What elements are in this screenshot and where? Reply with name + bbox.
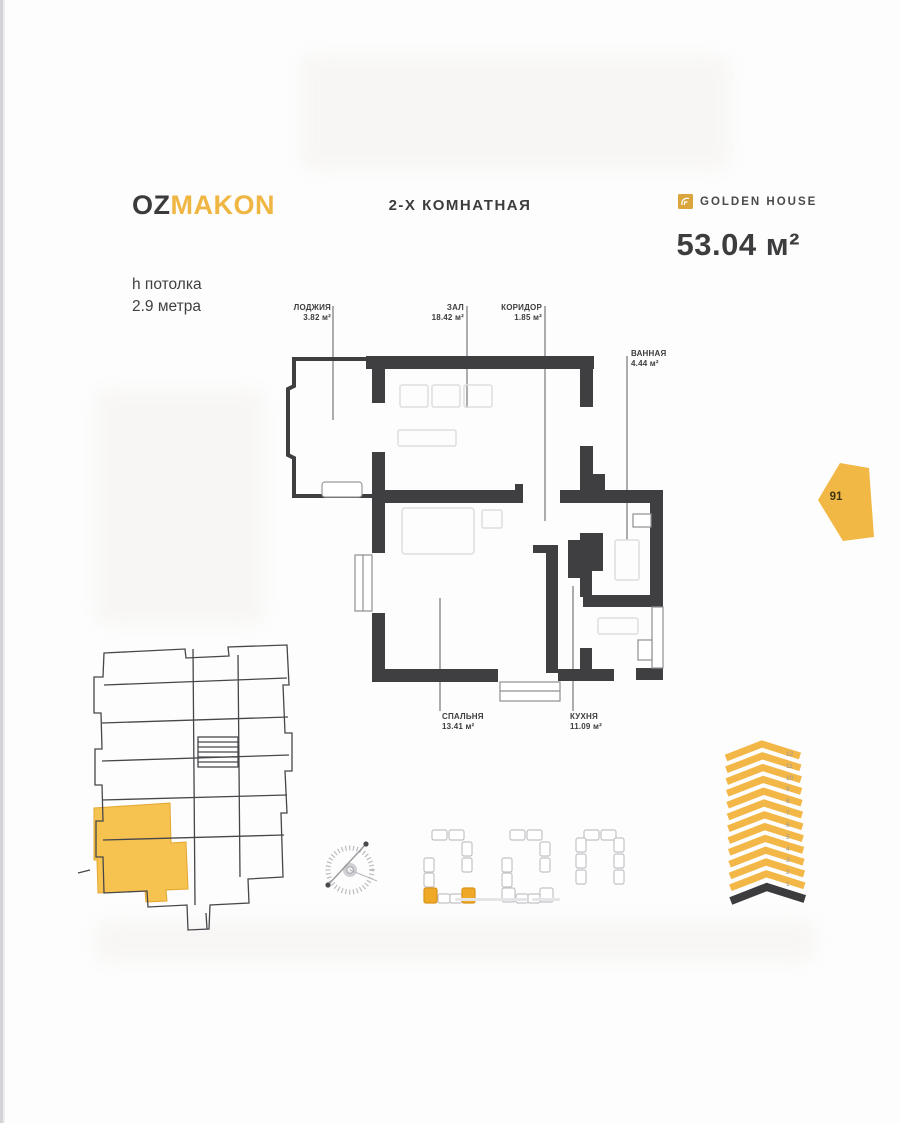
key-plan-highlighted-unit <box>94 803 188 902</box>
loggia-outline <box>288 359 380 497</box>
plan-graphics <box>0 0 900 1123</box>
unit-badge-number: 91 <box>818 491 854 503</box>
apartment-walls <box>366 356 663 682</box>
floor-plan-page: OZMAKON 2-Х КОМНАТНАЯ GOLDEN HOUSE 53.04… <box>0 0 900 1123</box>
compass-icon <box>325 841 377 892</box>
floor-key-plan <box>78 645 292 930</box>
site-plan-caption <box>532 898 560 901</box>
tower-floor-numbers: 1211 109 87 65 43 21 <box>786 751 800 888</box>
site-plan <box>424 830 624 903</box>
site-plan-caption <box>455 898 527 901</box>
